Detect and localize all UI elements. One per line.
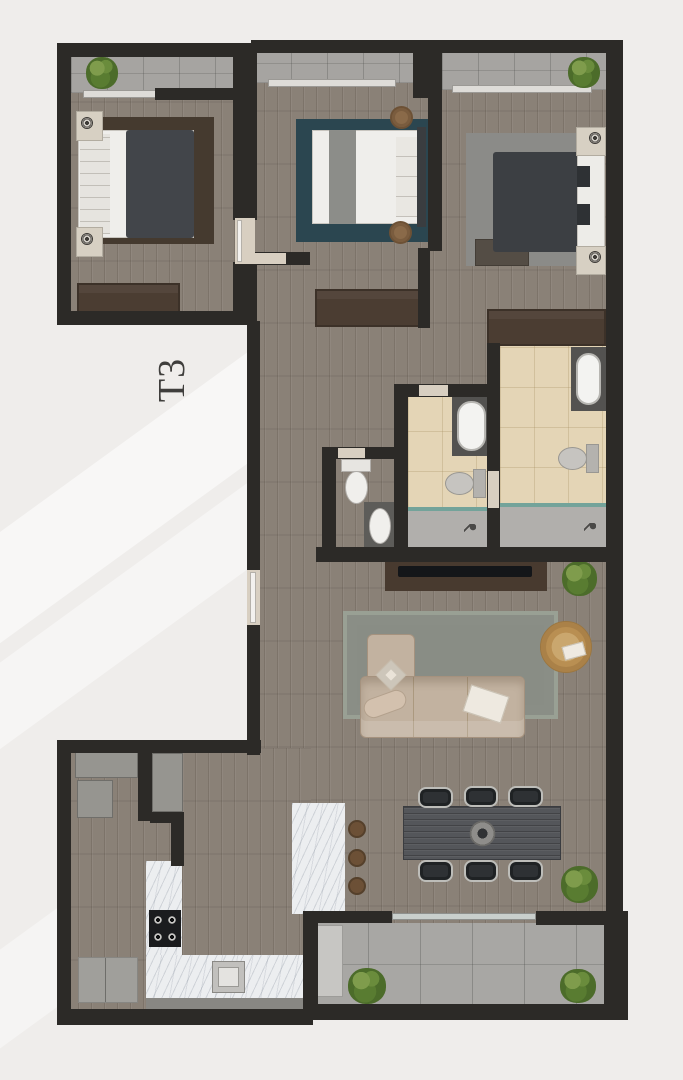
wall (316, 911, 392, 923)
wall (233, 43, 257, 220)
shower-glass (408, 507, 487, 511)
bed-headboard (577, 149, 605, 255)
utility-counter-top (75, 751, 138, 778)
wall (418, 248, 430, 328)
bed-pillows (80, 134, 110, 234)
toilet-tank (473, 469, 486, 498)
bedroom-2-door (254, 253, 286, 264)
balcony-panel (316, 925, 343, 997)
wall (57, 1009, 313, 1025)
cooktop (149, 910, 181, 947)
balcony-sliding-door (392, 913, 536, 920)
wall-segment (155, 88, 235, 100)
bedroom-3-wardrobe (487, 309, 606, 346)
toilet-bowl (345, 471, 368, 504)
wall (606, 51, 623, 1018)
wall (303, 1004, 628, 1020)
bar-stool (348, 877, 366, 895)
kitchen-sink-basin (218, 967, 239, 987)
wc-door (338, 448, 365, 458)
accent-pillow (577, 204, 590, 225)
wall (57, 311, 257, 325)
dining-chair (418, 860, 453, 882)
dining-chair (508, 786, 543, 807)
bed-pillows (396, 137, 418, 217)
dining-chair (418, 787, 453, 808)
lamp-icon (81, 233, 93, 245)
dining-chair (508, 860, 543, 882)
shower-head-icon (584, 523, 596, 535)
unit-label: T3 (135, 342, 210, 417)
wall (138, 749, 152, 821)
wall (604, 911, 628, 1017)
shower-glass (500, 503, 606, 507)
door-leaf (250, 572, 256, 623)
wall (57, 740, 71, 1025)
lamp-icon (589, 251, 601, 263)
wall (57, 43, 71, 325)
bathtub (576, 353, 601, 405)
family-bathroom-door (419, 385, 448, 396)
wall (536, 911, 608, 925)
lamp-icon (589, 132, 601, 144)
accent-pillow (577, 166, 590, 187)
plant (348, 968, 386, 1004)
wall (394, 384, 408, 560)
lamp-icon (81, 117, 93, 129)
bar-stool (348, 849, 366, 867)
washbasin (369, 508, 391, 544)
door-leaf (237, 220, 242, 262)
fridge (152, 753, 183, 812)
bedroom-3-bed-duvet (493, 152, 581, 252)
wall (428, 51, 442, 251)
utility-counter-bottom (78, 957, 138, 1003)
round-stool (389, 221, 412, 244)
wall (57, 43, 257, 57)
plant (568, 57, 600, 88)
bed-headboard (417, 127, 426, 227)
plant (562, 561, 597, 596)
wall (322, 447, 336, 559)
shower-head-icon (464, 524, 476, 536)
floor-plan-canvas: T3 (0, 0, 683, 1080)
bedroom-2-window (268, 79, 396, 87)
centerpiece-bowl (469, 820, 496, 847)
unit-label-text: T3 (151, 357, 195, 401)
toilet-tank (586, 444, 599, 473)
wall (233, 262, 257, 325)
toilet-bowl (558, 447, 587, 470)
kitchen-island (292, 803, 345, 914)
wall (57, 740, 261, 753)
wall (487, 343, 500, 559)
bathtub (457, 401, 486, 451)
wall (247, 321, 260, 755)
dining-chair (464, 786, 498, 807)
ensuite-door (488, 471, 499, 508)
bar-stool (348, 820, 366, 838)
plant (86, 57, 118, 89)
tv (398, 566, 532, 577)
bed-duvet (126, 130, 194, 238)
wall (316, 547, 608, 562)
plant (560, 969, 596, 1003)
dining-chair (464, 860, 498, 882)
bedroom-3-window (452, 85, 592, 93)
washing-machine (77, 780, 113, 818)
bedroom-1-window (83, 90, 157, 98)
toilet-bowl (445, 472, 474, 495)
plant (561, 866, 598, 903)
wall (171, 820, 184, 866)
bed-throw (329, 130, 356, 224)
bedroom-2-wardrobe (315, 289, 420, 327)
round-stool (390, 106, 413, 129)
